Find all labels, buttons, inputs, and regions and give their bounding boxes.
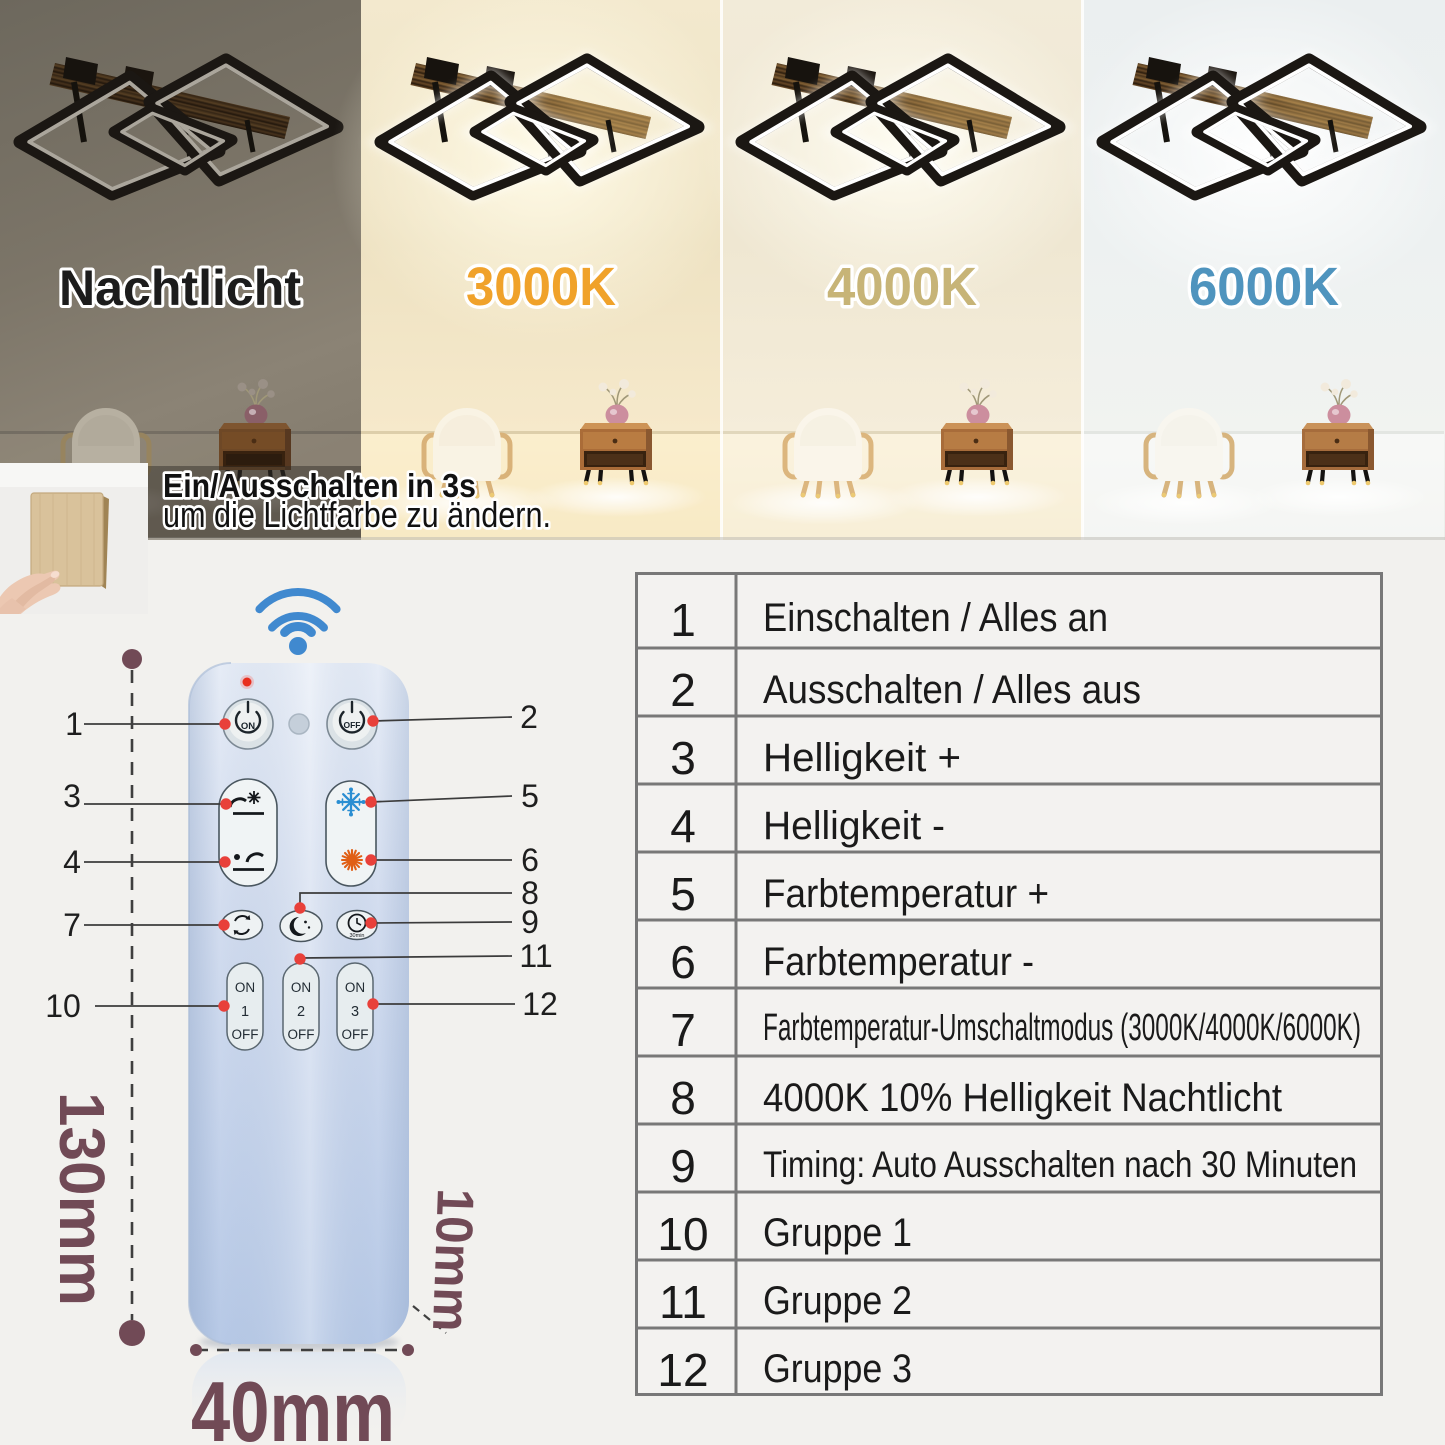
svg-text:6: 6 [670,936,696,988]
svg-text:Timing: Auto Ausschalten nach: Timing: Auto Ausschalten nach 30 Minuten [763,1144,1357,1185]
svg-text:12: 12 [522,986,558,1022]
svg-text:Helligkeit -: Helligkeit - [763,804,945,848]
svg-text:40mm: 40mm [191,1365,395,1445]
svg-text:Farbtemperatur -: Farbtemperatur - [763,940,1034,984]
svg-text:um die Lichtfarbe zu ändern.: um die Lichtfarbe zu ändern. [163,494,551,535]
svg-text:ON: ON [235,980,255,995]
svg-text:2: 2 [670,664,696,716]
svg-text:5: 5 [670,868,696,920]
svg-text:10mm: 10mm [421,1188,484,1333]
svg-text:130mm: 130mm [46,1092,118,1306]
svg-text:30min: 30min [350,933,365,939]
svg-text:9: 9 [670,1140,696,1192]
svg-text:Gruppe 2: Gruppe 2 [763,1279,912,1323]
svg-text:9: 9 [521,904,539,940]
svg-text:Ausschalten / Alles aus: Ausschalten / Alles aus [763,668,1141,712]
svg-text:Farbtemperatur-Umschaltmodus (: Farbtemperatur-Umschaltmodus (3000K/4000… [763,1007,1361,1049]
svg-text:10: 10 [45,988,81,1024]
svg-text:Gruppe 1: Gruppe 1 [763,1211,912,1255]
svg-text:3000K: 3000K [466,257,616,317]
svg-text:Nachtlicht: Nachtlicht [59,260,301,316]
svg-text:11: 11 [519,938,552,974]
svg-text:4: 4 [670,800,696,852]
svg-text:7: 7 [670,1004,696,1056]
svg-text:Gruppe 3: Gruppe 3 [763,1347,912,1391]
svg-text:OFF: OFF [232,1027,259,1042]
svg-text:7: 7 [63,907,81,943]
svg-text:4: 4 [63,844,81,880]
svg-text:1: 1 [241,1004,249,1020]
svg-text:5: 5 [521,778,539,814]
svg-text:Einschalten / Alles an: Einschalten / Alles an [763,596,1108,640]
svg-text:8: 8 [670,1072,696,1124]
svg-text:1: 1 [670,594,696,646]
svg-text:ON: ON [291,980,311,995]
svg-text:Helligkeit +: Helligkeit + [763,736,961,780]
svg-text:OFF: OFF [344,720,361,730]
svg-text:3: 3 [670,732,696,784]
svg-text:11: 11 [659,1276,707,1328]
svg-text:OFF: OFF [288,1027,315,1042]
svg-text:1: 1 [65,706,83,742]
svg-text:3: 3 [351,1004,359,1020]
svg-text:Farbtemperatur +: Farbtemperatur + [763,872,1049,916]
svg-text:2: 2 [297,1004,305,1020]
svg-text:2: 2 [520,699,538,735]
svg-text:6000K: 6000K [1189,257,1339,317]
svg-text:10: 10 [657,1208,708,1260]
svg-text:6: 6 [521,842,539,878]
svg-text:OFF: OFF [342,1027,369,1042]
svg-text:12: 12 [657,1344,708,1396]
svg-text:ON: ON [241,721,255,732]
svg-text:3: 3 [63,778,81,814]
svg-text:4000K 10% Helligkeit Nachtlich: 4000K 10% Helligkeit Nachtlicht [763,1076,1282,1120]
svg-text:ON: ON [345,980,365,995]
svg-text:4000K: 4000K [827,257,977,317]
